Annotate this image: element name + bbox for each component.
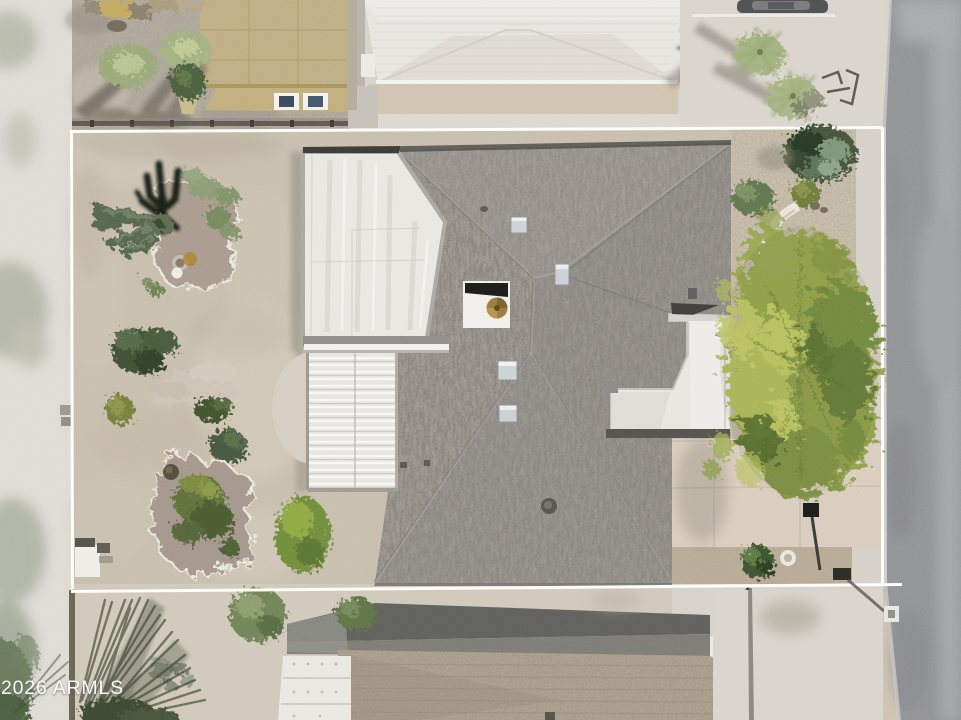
svg-text:2026 ARMLS: 2026 ARMLS (1, 677, 124, 699)
